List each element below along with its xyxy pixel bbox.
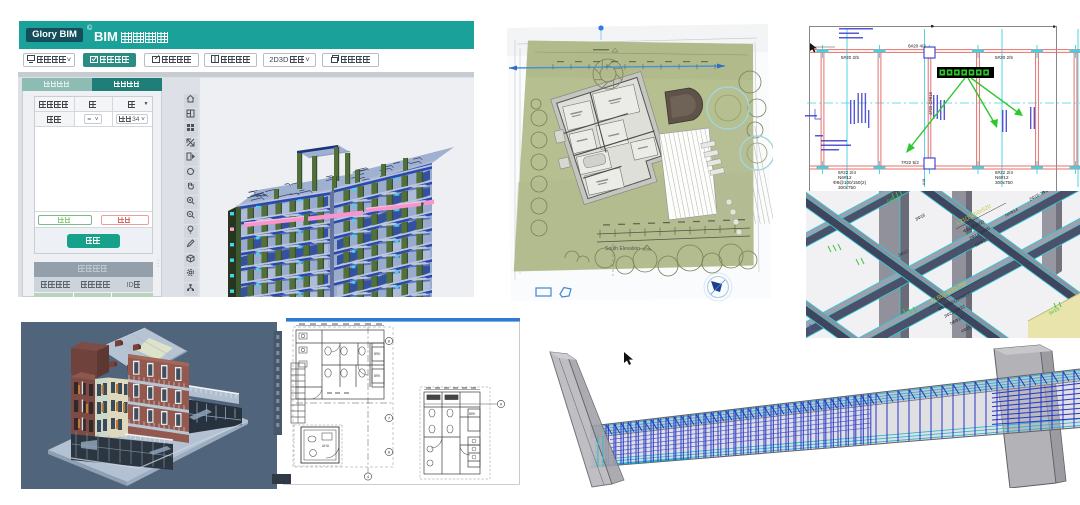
svg-text:AHU: AHU bbox=[322, 444, 330, 448]
svg-text:BRK: BRK bbox=[469, 412, 476, 416]
svg-text:7#22 5/2: 7#22 5/2 bbox=[901, 160, 919, 165]
svg-text:5#20 2/5: 5#20 2/5 bbox=[841, 55, 859, 60]
svg-text:4#20 C#818: 4#20 C#818 bbox=[928, 92, 933, 115]
svg-text:South Elevation: South Elevation bbox=[605, 246, 640, 252]
svg-text:BRK: BRK bbox=[374, 352, 381, 356]
svg-text:BRK: BRK bbox=[374, 374, 381, 378]
svg-text:300x750: 300x750 bbox=[995, 180, 1013, 185]
svg-text:5#20 2/5: 5#20 2/5 bbox=[995, 55, 1013, 60]
svg-text:6#20 4/2: 6#20 4/2 bbox=[908, 44, 926, 49]
svg-text:#18: #18 bbox=[922, 179, 926, 185]
svg-text:300x750: 300x750 bbox=[838, 185, 856, 190]
